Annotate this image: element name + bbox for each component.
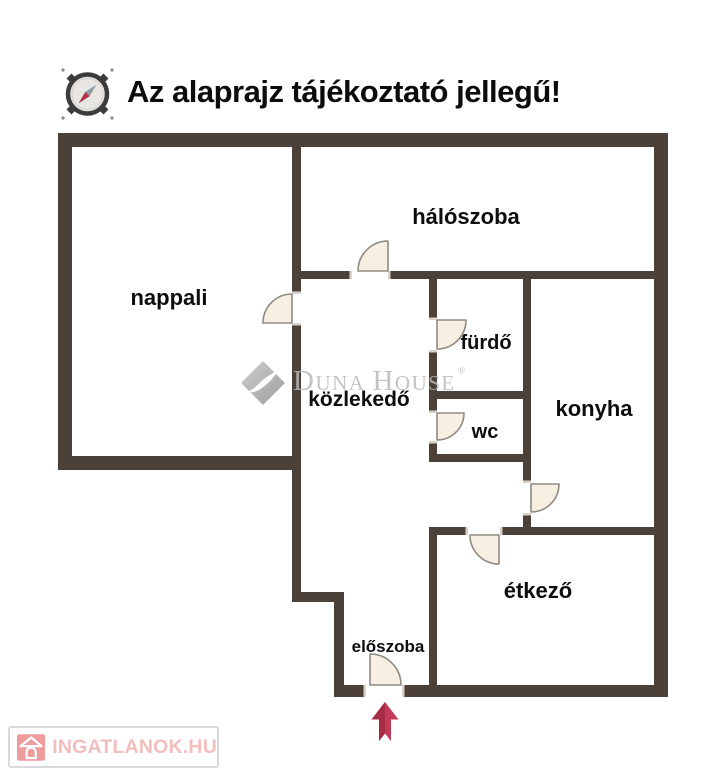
- door-arc-nappali: [263, 294, 292, 323]
- door-arc-haloszoba: [358, 241, 388, 271]
- page-title: Az alaprajz tájékoztató jellegű!: [127, 74, 561, 110]
- jamb: [429, 441, 437, 444]
- door-arc-eloszoba: [370, 654, 401, 685]
- jamb: [429, 350, 437, 353]
- jamb: [402, 685, 405, 697]
- jamb: [429, 318, 437, 321]
- ingatlanok-logo: INGATLANOK.HU: [8, 726, 219, 768]
- door-arc-wc: [437, 413, 464, 440]
- jamb: [292, 292, 301, 295]
- compass-mark: [110, 68, 113, 71]
- room-label-konyha: konyha: [555, 396, 633, 421]
- jamb: [364, 685, 367, 697]
- jamb: [388, 271, 391, 279]
- door-arc-konyha: [531, 484, 559, 512]
- wall-wc-bottom: [429, 454, 531, 462]
- entrance-arrow-up-icon: [372, 702, 399, 741]
- compass-mark: [61, 68, 64, 71]
- wall-exterior-left: [58, 133, 72, 470]
- compass-mark: [110, 116, 113, 119]
- floorplan-page: Az alaprajz tájékoztató jellegű!: [0, 0, 712, 768]
- room-label-etkezo: étkező: [504, 578, 572, 603]
- jamb: [523, 513, 531, 516]
- wall-etkezo-top-right: [500, 527, 654, 535]
- wall-haloszoba-bottom-right: [388, 271, 654, 279]
- wall-etkezo-top-left: [429, 527, 468, 535]
- room-label-haloszoba: hálószoba: [412, 204, 520, 229]
- wall-etkezo-left: [429, 535, 437, 685]
- footer-logo-text: INGATLANOK.HU: [52, 736, 217, 759]
- compass-icon: [55, 61, 119, 127]
- room-label-wc: wc: [471, 421, 499, 443]
- room-label-eloszoba: előszoba: [352, 637, 425, 656]
- house-icon: [17, 733, 45, 762]
- room-label-furdo: fürdő: [460, 332, 511, 354]
- wall-exterior-lowerleft: [292, 470, 301, 600]
- jamb: [523, 481, 531, 484]
- wall-nappali-bottom: [58, 456, 301, 470]
- room-label-nappali: nappali: [130, 285, 207, 310]
- jamb: [500, 527, 503, 535]
- wall-konyha-left-upper: [523, 279, 531, 483]
- jamb: [292, 323, 301, 326]
- wall-exterior-bottom-left: [334, 685, 366, 697]
- wall-exterior-top: [58, 133, 668, 147]
- jamb: [429, 411, 437, 414]
- door-arc-etkezo: [470, 535, 499, 564]
- wall-exterior-bottom-right: [402, 685, 668, 697]
- wall-nappali-divider-upper: [292, 147, 301, 294]
- room-label-kozlekedo: közlekedő: [308, 388, 410, 411]
- doors: [263, 241, 559, 685]
- header: Az alaprajz tájékoztató jellegű!: [0, 0, 712, 130]
- jamb: [466, 527, 469, 535]
- jamb: [350, 271, 353, 279]
- wall-haloszoba-bottom-left: [301, 271, 352, 279]
- wall-exterior-right: [654, 133, 668, 697]
- wall-furdo-left-upper: [429, 279, 437, 320]
- entrance-arrow-shade: [372, 702, 386, 741]
- compass-mark: [61, 116, 64, 119]
- wall-exterior-step-vert: [334, 592, 344, 697]
